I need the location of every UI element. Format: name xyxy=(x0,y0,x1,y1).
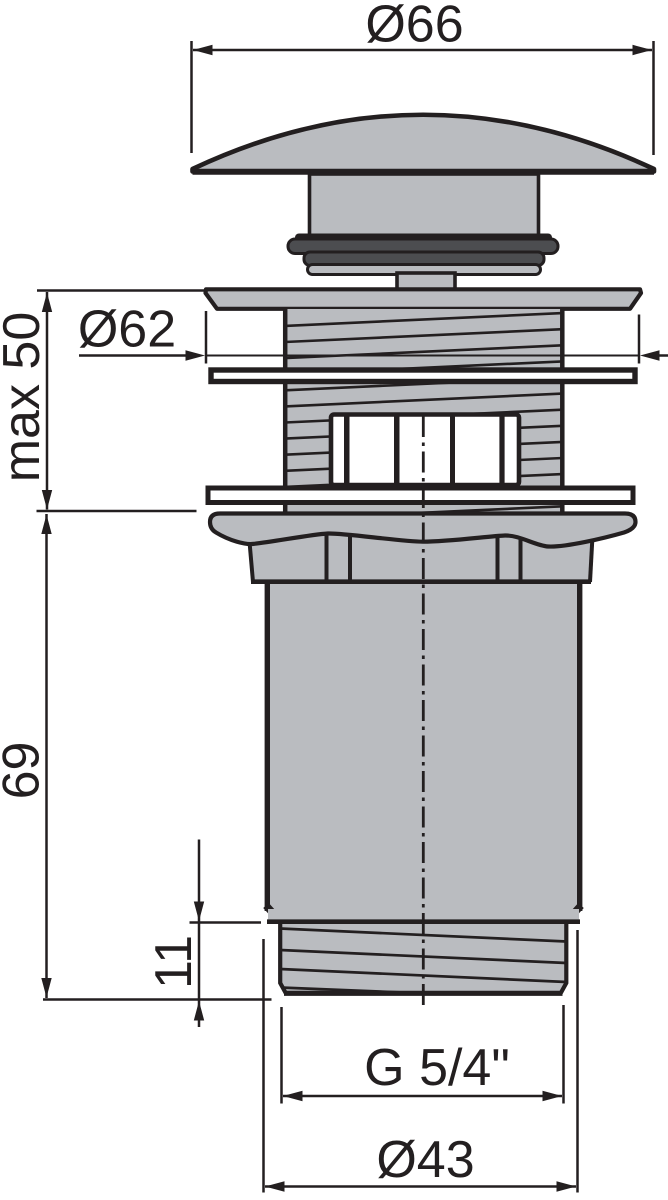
svg-text:max 50: max 50 xyxy=(0,312,51,483)
svg-text:Ø62: Ø62 xyxy=(78,301,176,359)
svg-text:Ø66: Ø66 xyxy=(365,0,463,54)
svg-text:Ø43: Ø43 xyxy=(376,1131,474,1189)
svg-text:11: 11 xyxy=(145,935,203,989)
svg-text:69: 69 xyxy=(0,742,51,800)
svg-text:G 5/4": G 5/4" xyxy=(364,1039,510,1097)
